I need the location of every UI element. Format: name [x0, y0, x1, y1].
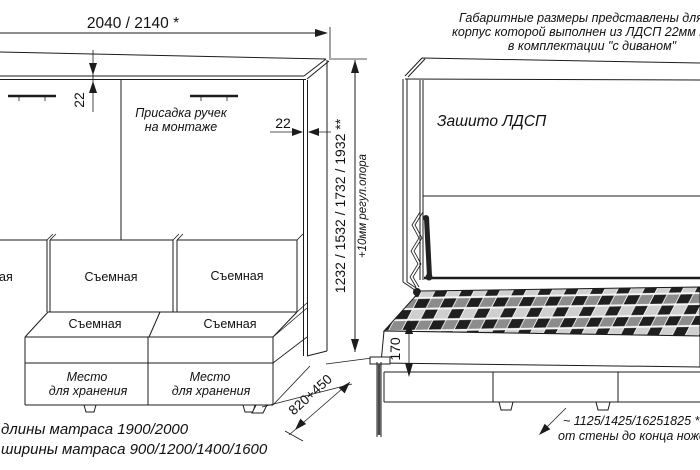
back-cushion-mid-label: Съемная	[84, 270, 137, 284]
handles-note-line2: на монтаже	[145, 120, 218, 134]
storage-left-line2: для хранения	[49, 384, 128, 398]
background	[0, 0, 700, 470]
wall-bed-technical-drawing: 2040 / 2140 * 22 Присадка ручек на монта…	[0, 0, 700, 470]
wall-distance-line1: ~ 1125/1425/16251825 **	[563, 414, 700, 428]
title-note-line2: корпус которой выполнен из ЛДСП 22мм тол…	[452, 25, 700, 39]
back-panel-label: Зашито ЛДСП	[437, 113, 547, 130]
platform-height-label: 170	[387, 337, 403, 361]
width-dimension-label: 2040 / 2140 *	[87, 15, 179, 32]
handles-note-line1: Присадка ручек	[135, 106, 228, 120]
storage-right-line1: Место	[190, 370, 231, 384]
seat-cushion-left-label: Съемная	[68, 317, 121, 331]
side-panel-thickness-label: 22	[275, 115, 291, 131]
back-cushion-left-fragment: ая	[0, 270, 13, 284]
drawing-canvas: 2040 / 2140 * 22 Присадка ручек на монта…	[0, 0, 700, 470]
back-cushion-right-label: Съемная	[210, 269, 263, 283]
title-note-line3: в комплектации "с диваном"	[508, 39, 677, 53]
footnote-mattress-length: длины матраса 1900/2000	[1, 421, 189, 438]
footnote-mattress-width: ширины матраса 900/1200/1400/1600	[1, 441, 268, 458]
title-note-line1: Габаритные размеры представлены для кров	[459, 11, 700, 25]
storage-right-line2: для хранения	[172, 384, 251, 398]
wall-distance-line2: от стены до конца ножек	[558, 429, 700, 443]
height-dimension-note: +10мм регул.опора	[357, 154, 369, 258]
storage-left-line1: Место	[67, 370, 108, 384]
height-dimension-label: 1232 / 1532 / 1732 / 1932 **	[332, 118, 348, 293]
top-panel-thickness-label: 22	[71, 92, 87, 108]
seat-cushion-right-label: Съемная	[203, 317, 256, 331]
